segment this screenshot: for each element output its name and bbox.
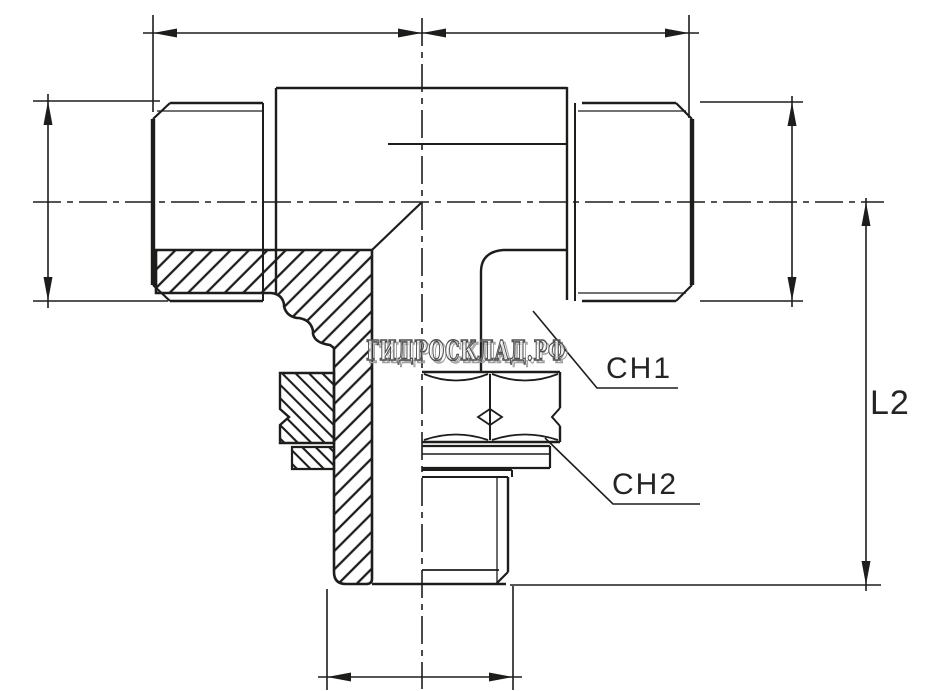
- right-port-outline: [567, 87, 692, 301]
- arrowhead-down: [788, 277, 797, 301]
- arrowhead-down: [44, 277, 53, 301]
- arrowhead-down: [862, 561, 871, 585]
- stud-chamfer: [496, 572, 508, 584]
- watermark-text: ГИДРОСКЛАД.РФ: [366, 336, 566, 367]
- drawing-canvas: L2: [0, 0, 930, 691]
- nut-face-notch: [552, 408, 560, 426]
- washer-section: [292, 447, 334, 469]
- arrowhead-right: [489, 673, 513, 682]
- locknut-section: [280, 373, 334, 443]
- nut-chamfer-arc: [492, 374, 558, 381]
- nut-chamfer-arc: [424, 374, 488, 381]
- nut-chamfer-arc: [424, 435, 488, 441]
- branch-external: [372, 250, 567, 584]
- ch2-label: CH2: [612, 468, 678, 501]
- arrowhead-right: [665, 29, 689, 38]
- dimension-l2: L2: [510, 198, 910, 591]
- arrowhead-up: [44, 101, 53, 125]
- arrowhead-left: [153, 29, 177, 38]
- dimension-left-port-od: [33, 94, 168, 308]
- arrowhead-left: [327, 673, 351, 682]
- l2-label: L2: [870, 384, 910, 422]
- ch1-label: CH1: [606, 352, 672, 385]
- dimension-bottom-stud: [318, 586, 522, 690]
- watermark: ГИДРОСКЛАД.РФ ГИДРОСКЛАД.РФ: [366, 336, 569, 370]
- tee-fitting-technical-drawing: L2: [0, 0, 930, 691]
- nut-chamfer-arc: [492, 435, 558, 441]
- arrowhead-right: [398, 29, 422, 38]
- bore-junction-diagonal: [372, 203, 421, 250]
- arrowhead-up: [788, 102, 797, 126]
- underside-fillet: [481, 250, 503, 272]
- arrowhead-left: [422, 29, 446, 38]
- arrowhead-up: [862, 202, 871, 226]
